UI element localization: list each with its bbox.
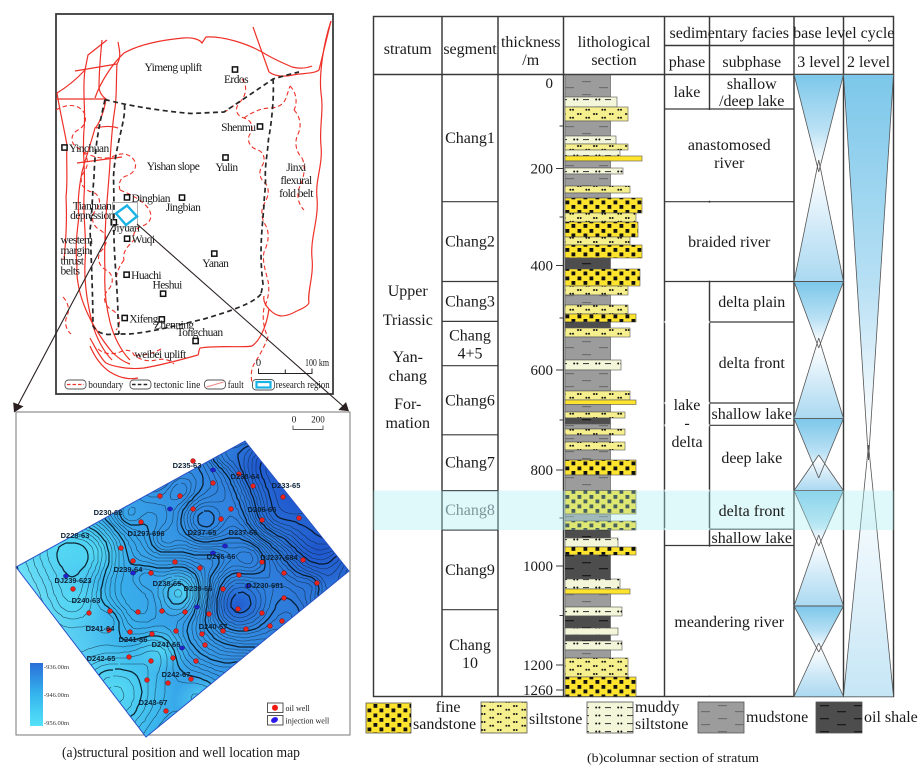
svg-text:D236-66: D236-66 [207, 552, 236, 561]
svg-text:braided river: braided river [688, 234, 771, 251]
svg-text:Upper: Upper [388, 283, 429, 300]
svg-text:800: 800 [531, 463, 554, 479]
svg-text:D238-64: D238-64 [231, 472, 261, 481]
svg-text:section: section [591, 52, 636, 69]
svg-text:D230-62: D230-62 [94, 508, 123, 517]
svg-text:D237-65: D237-65 [188, 528, 217, 537]
svg-text:D243-67: D243-67 [139, 698, 168, 707]
svg-text:siltstone: siltstone [635, 716, 688, 733]
svg-text:oil well: oil well [286, 704, 311, 713]
svg-text:-956.00m: -956.00m [44, 720, 69, 727]
svg-text:D206-66: D206-66 [248, 505, 277, 514]
svg-text:segment: segment [443, 41, 497, 58]
svg-text:D1297-696: D1297-696 [127, 529, 164, 538]
svg-text:0: 0 [546, 76, 554, 92]
svg-text:thickness: thickness [501, 34, 561, 51]
svg-text:Jingbian: Jingbian [166, 202, 201, 214]
svg-text:(b)columnar section of stratum: (b)columnar section of stratum [587, 750, 759, 765]
svg-text:(a)structural position and wel: (a)structural position and well location… [62, 745, 300, 761]
svg-text:For-: For- [394, 396, 421, 413]
svg-text:D241-66: D241-66 [152, 640, 181, 649]
svg-text:D240-63: D240-63 [72, 596, 101, 605]
svg-text:Chang3: Chang3 [445, 293, 495, 310]
svg-text:-946.00m: -946.00m [44, 692, 69, 699]
svg-text:Yanan: Yanan [202, 258, 229, 270]
svg-text:Chang1: Chang1 [445, 130, 495, 147]
svg-text:base level cycle: base level cycle [793, 25, 894, 42]
svg-text:muddy: muddy [635, 699, 679, 716]
svg-text:D237-66: D237-66 [229, 528, 258, 537]
svg-text:D242-65: D242-65 [87, 654, 116, 663]
svg-text:600: 600 [531, 363, 554, 379]
svg-text:1000: 1000 [523, 559, 553, 575]
svg-text:sandstone: sandstone [413, 716, 476, 733]
svg-text:chang: chang [389, 368, 427, 385]
svg-text:Chang8: Chang8 [445, 502, 495, 519]
svg-text:Heshui: Heshui [152, 280, 182, 292]
svg-text:400: 400 [531, 259, 554, 275]
svg-text:200: 200 [311, 415, 325, 425]
svg-text:mudstone: mudstone [746, 709, 808, 726]
svg-text:Chang9: Chang9 [445, 562, 495, 579]
svg-text:D241-86: D241-86 [119, 635, 148, 644]
svg-text:weibei uplift: weibei uplift [134, 349, 187, 361]
svg-text:D235-63: D235-63 [173, 461, 202, 470]
svg-text:oil shale: oil shale [864, 709, 918, 726]
svg-text:D239-66: D239-66 [184, 584, 213, 593]
svg-text:delta front: delta front [719, 355, 786, 372]
svg-text:100 km: 100 km [305, 358, 329, 369]
svg-text:200: 200 [531, 162, 554, 178]
svg-text:Chang: Chang [449, 637, 491, 654]
svg-text:DJ230-681: DJ230-681 [246, 581, 283, 590]
svg-text:injection well: injection well [286, 717, 331, 726]
svg-text:/deep lake: /deep lake [719, 93, 784, 110]
svg-text:0: 0 [292, 416, 297, 426]
svg-text:D233-65: D233-65 [272, 481, 301, 490]
svg-text:0: 0 [256, 358, 261, 369]
svg-text:fold belt: fold belt [279, 188, 314, 200]
svg-text:shallow: shallow [727, 76, 777, 93]
svg-text:lithological: lithological [578, 34, 651, 51]
svg-text:Yan-: Yan- [393, 349, 423, 366]
svg-text:phase: phase [669, 54, 705, 71]
svg-text:Tongchuan: Tongchuan [177, 327, 224, 339]
svg-text:shallow lake: shallow lake [712, 406, 792, 423]
svg-text:-936.00m: -936.00m [44, 664, 69, 671]
svg-text:Yinchuan: Yinchuan [69, 143, 109, 155]
svg-text:D228-63: D228-63 [61, 531, 90, 540]
svg-text:Yulin: Yulin [215, 162, 238, 174]
svg-text:fine: fine [436, 699, 461, 716]
svg-text:Yimeng uplift: Yimeng uplift [144, 62, 202, 74]
svg-text:siltstone: siltstone [529, 711, 582, 728]
svg-text:Chang7: Chang7 [445, 455, 495, 472]
svg-text:belts: belts [61, 266, 81, 278]
svg-text:delta front: delta front [719, 503, 786, 520]
svg-text:Erdos: Erdos [224, 74, 249, 86]
svg-text:research region: research region [276, 379, 330, 391]
svg-text:meandering river: meandering river [674, 614, 784, 631]
svg-text:D242-67: D242-67 [162, 670, 191, 679]
svg-text:delta: delta [671, 434, 702, 451]
svg-text:Triassic: Triassic [383, 312, 433, 329]
svg-text:boundary: boundary [88, 379, 123, 391]
svg-text:D240-67: D240-67 [199, 622, 228, 631]
svg-text:anastomosed: anastomosed [688, 137, 771, 154]
svg-text:tectonic line: tectonic line [154, 379, 201, 391]
svg-text:lake: lake [674, 397, 701, 414]
svg-text:Shenmu: Shenmu [221, 122, 256, 134]
svg-text:-: - [684, 415, 689, 432]
svg-text:D239-64: D239-64 [114, 565, 144, 574]
svg-text:delta plain: delta plain [718, 294, 785, 311]
svg-text:sedimentary facies: sedimentary facies [670, 25, 790, 42]
svg-text:4+5: 4+5 [457, 346, 482, 363]
svg-text:Yishan slope: Yishan slope [147, 161, 200, 173]
svg-text:lake: lake [674, 84, 701, 101]
svg-text:Chang6: Chang6 [445, 392, 495, 409]
svg-text:Chang2: Chang2 [445, 234, 495, 251]
svg-text:Jinxi: Jinxi [286, 162, 306, 174]
svg-text:2 level: 2 level [847, 54, 891, 71]
svg-text:/m: /m [522, 52, 539, 69]
svg-text:river: river [714, 155, 745, 172]
svg-text:flexural: flexural [280, 175, 312, 187]
svg-text:DJ239-623: DJ239-623 [54, 576, 91, 585]
svg-text:10: 10 [462, 655, 478, 672]
svg-text:1260: 1260 [523, 683, 553, 699]
svg-text:Chang: Chang [449, 328, 491, 345]
svg-text:depression: depression [70, 210, 114, 222]
svg-text:DJ237-684: DJ237-684 [260, 553, 298, 562]
svg-text:stratum: stratum [384, 41, 433, 58]
svg-text:shallow lake: shallow lake [712, 530, 792, 547]
svg-text:fault: fault [228, 379, 244, 391]
svg-text:D238-65: D238-65 [153, 579, 182, 588]
svg-text:1200: 1200 [523, 658, 553, 674]
svg-text:D241-64: D241-64 [86, 624, 116, 633]
svg-text:mation: mation [386, 415, 430, 432]
svg-text:subphase: subphase [722, 54, 781, 71]
svg-text:3 level: 3 level [797, 54, 841, 71]
svg-text:deep lake: deep lake [721, 450, 782, 467]
